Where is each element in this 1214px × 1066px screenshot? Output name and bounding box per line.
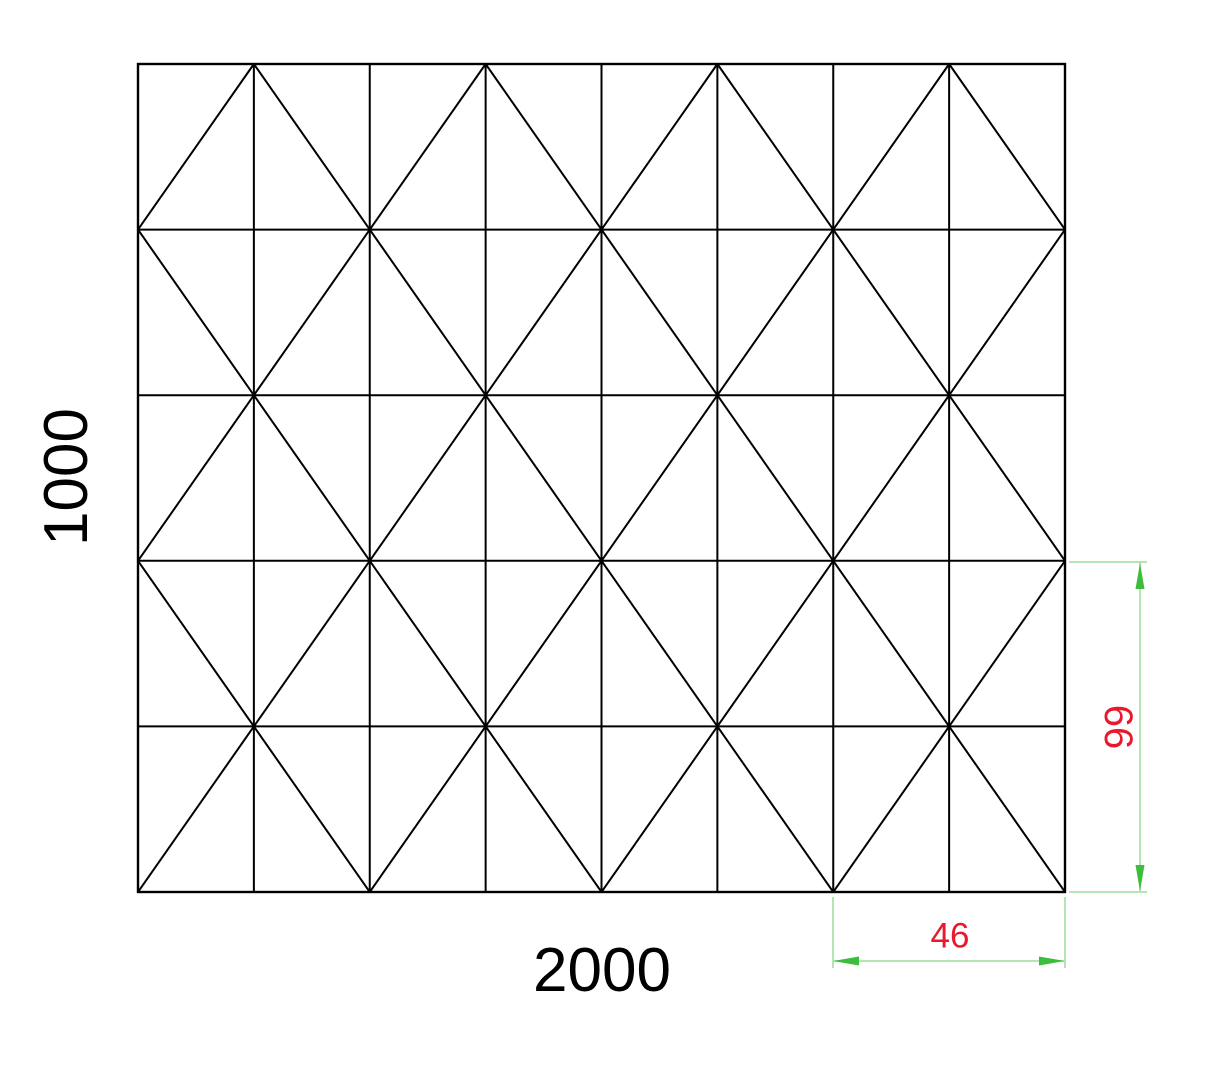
overall-width-label: 2000	[533, 940, 671, 1002]
overall-height-label: 1000	[36, 408, 98, 546]
detail-width-dimension-label: 46	[931, 919, 970, 954]
mesh-panel-drawing	[0, 0, 1214, 1066]
dimension-arrowhead	[833, 957, 859, 966]
dimension-arrowhead	[1136, 865, 1145, 891]
cad-drawing-canvas: 2000 1000 66 46	[0, 0, 1214, 1066]
dimension-arrowhead	[1039, 957, 1065, 966]
detail-height-dimension-label: 66	[1098, 705, 1138, 750]
dimension-lines	[833, 562, 1147, 968]
mesh-lines	[138, 64, 1065, 892]
dimension-arrowhead	[1136, 563, 1145, 589]
